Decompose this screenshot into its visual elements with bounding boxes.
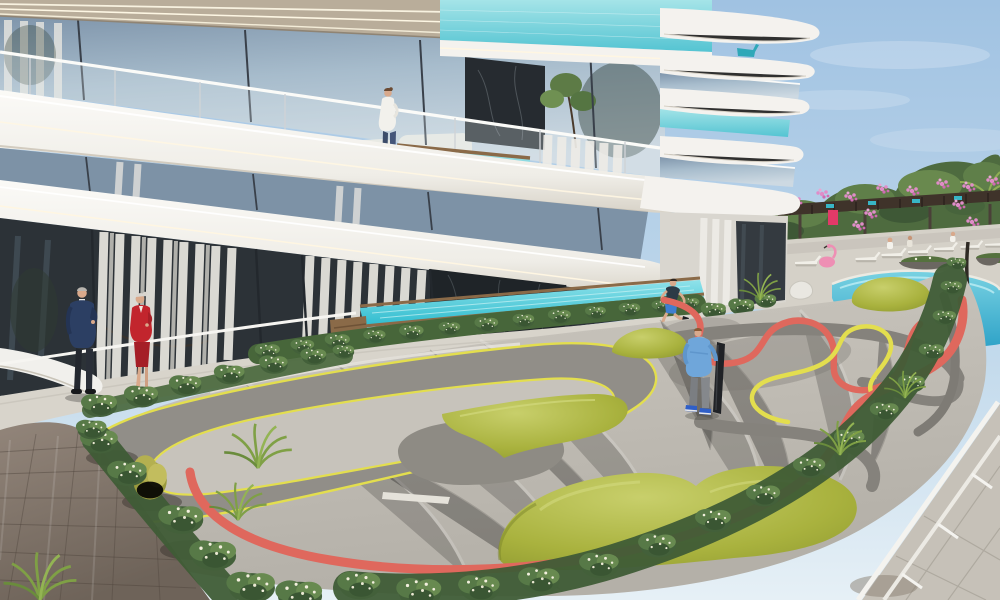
architectural-rendering bbox=[0, 0, 1000, 600]
magenta-sign bbox=[828, 210, 838, 225]
rendering-canvas bbox=[0, 0, 1000, 600]
white-boulder bbox=[790, 281, 813, 299]
